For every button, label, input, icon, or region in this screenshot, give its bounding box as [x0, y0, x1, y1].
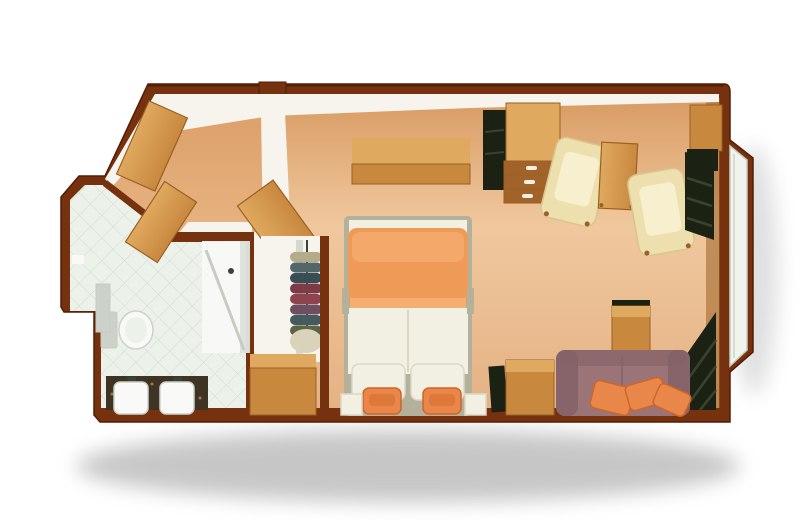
- bathroom-horizontal-wall: [166, 232, 252, 242]
- toilet-seat: [125, 317, 147, 343]
- floorplan-image: [0, 0, 800, 520]
- overhead-shelf: [352, 138, 470, 184]
- marble-speck: [151, 383, 154, 386]
- sofa: [556, 350, 692, 418]
- floorplan-canvas: [0, 0, 800, 520]
- double-bed: [342, 216, 474, 416]
- shower-head-icon: [228, 268, 234, 274]
- bay-window: [730, 146, 747, 366]
- clothes-item: [290, 252, 322, 262]
- sink-1: [114, 382, 148, 414]
- accent-pillow-left-band: [369, 394, 395, 406]
- dresser: [250, 354, 316, 415]
- laundry-bag: [290, 329, 322, 353]
- bed-frame-tab-left: [342, 288, 349, 314]
- window-glass: [730, 146, 747, 366]
- drawer-handle-3: [522, 194, 533, 198]
- bed-blanket-highlight: [352, 232, 464, 262]
- clothes-item: [290, 315, 322, 325]
- sofa-side-table: [612, 306, 650, 354]
- dark-bag: [488, 365, 507, 412]
- marble-speck: [199, 397, 202, 400]
- toilet-paper-holder: [72, 255, 84, 264]
- nightstand-left: [341, 394, 362, 415]
- accent-pillow-right-band: [429, 394, 455, 406]
- clothes-item: [290, 305, 322, 315]
- bed-frame-tab-right: [467, 288, 474, 314]
- shelf-front: [352, 164, 470, 184]
- clothes-item: [290, 294, 322, 304]
- shower: [202, 241, 250, 353]
- shadow-bottom: [76, 430, 740, 502]
- vanity-counter: [106, 376, 208, 414]
- closet-right-wall: [320, 236, 329, 415]
- nightstand-right: [465, 394, 486, 415]
- drawer-handle-1: [526, 166, 537, 170]
- drawer-handle-2: [524, 180, 535, 184]
- shelf-top: [352, 138, 470, 164]
- marble-speck: [111, 393, 114, 396]
- shower-wall: [240, 241, 250, 353]
- side-cabinet: [506, 360, 554, 415]
- clothes-item: [290, 284, 322, 294]
- wall-shelf: [96, 284, 110, 332]
- sink-2: [160, 382, 194, 414]
- vanity-cabinet: [506, 103, 560, 163]
- tv-panel: [483, 110, 506, 190]
- closet-left-face: [254, 232, 261, 372]
- dresser-front: [250, 368, 316, 415]
- clothes-item: [290, 273, 322, 283]
- curtain-top: [685, 152, 714, 240]
- clothes-item: [290, 263, 322, 273]
